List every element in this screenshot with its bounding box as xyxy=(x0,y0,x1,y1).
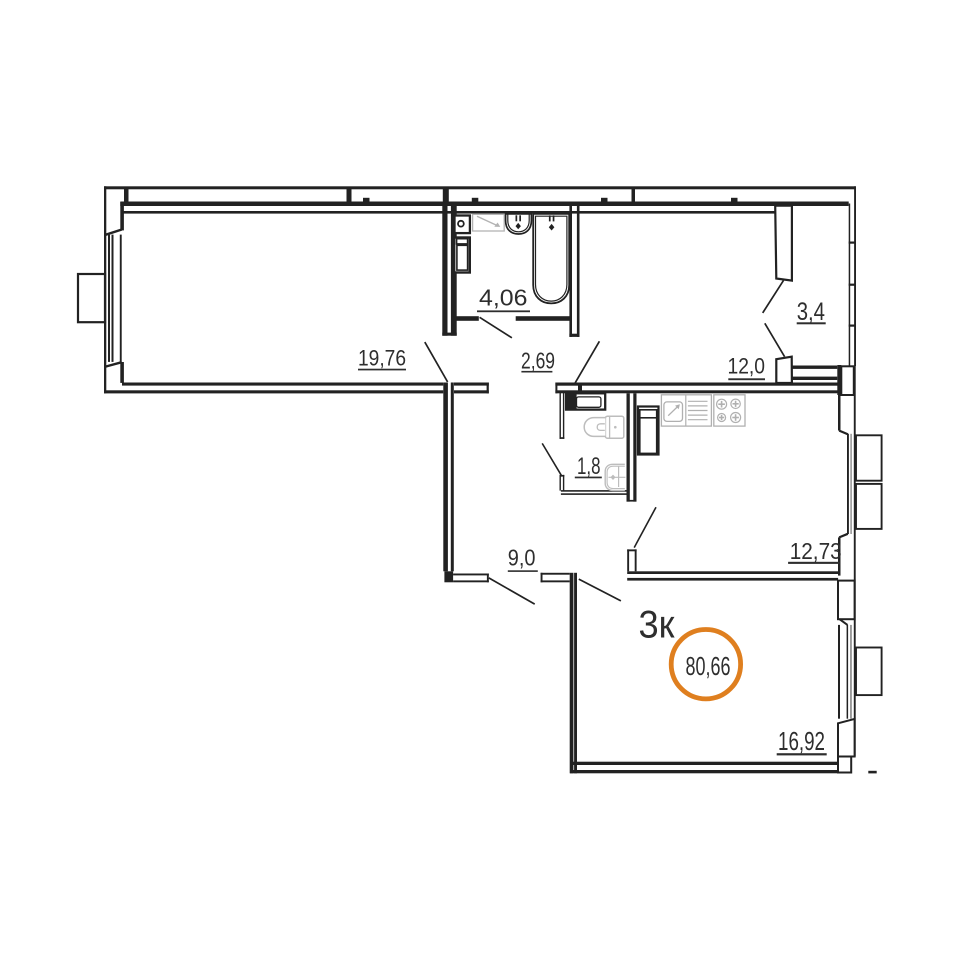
svg-text:19,76: 19,76 xyxy=(358,345,406,370)
svg-text:1,8: 1,8 xyxy=(577,453,601,480)
svg-text:2,69: 2,69 xyxy=(521,348,555,374)
svg-text:4,06: 4,06 xyxy=(479,285,528,311)
svg-text:3,4: 3,4 xyxy=(797,298,825,326)
svg-text:12,0: 12,0 xyxy=(728,353,766,378)
svg-text:3к: 3к xyxy=(639,604,676,647)
svg-text:9,0: 9,0 xyxy=(508,545,536,571)
svg-text:16,92: 16,92 xyxy=(778,726,825,756)
svg-text:80,66: 80,66 xyxy=(686,651,731,681)
svg-text:12,73: 12,73 xyxy=(790,538,842,564)
